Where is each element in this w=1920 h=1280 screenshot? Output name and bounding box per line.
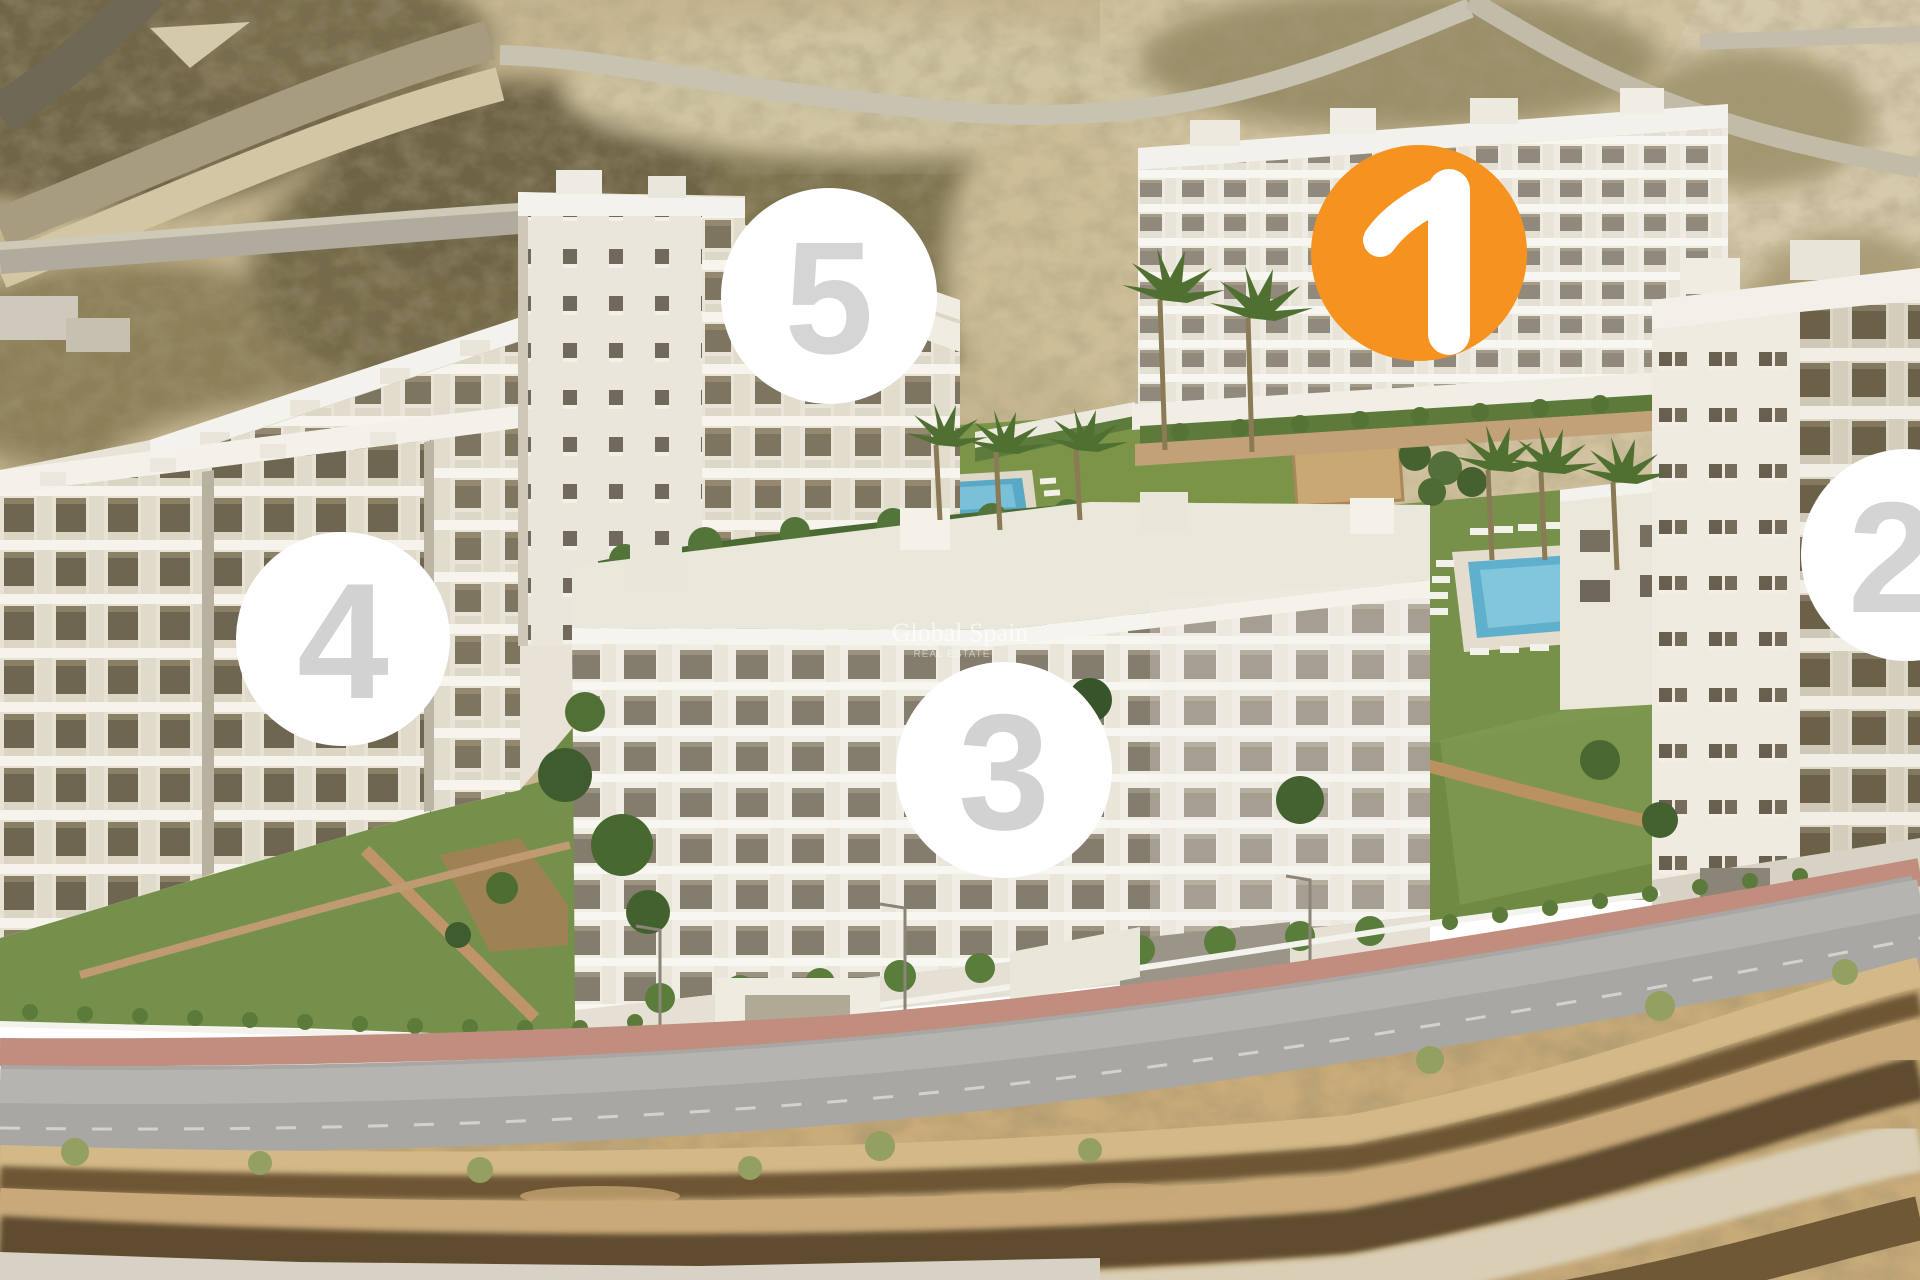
svg-text:5: 5 <box>785 208 874 387</box>
svg-text:Global Spain: Global Spain <box>892 618 1029 647</box>
svg-text:REAL ESTATE: REAL ESTATE <box>914 649 991 660</box>
svg-text:4: 4 <box>297 549 389 733</box>
svg-text:3: 3 <box>958 680 1050 864</box>
svg-text:2: 2 <box>1848 470 1920 646</box>
